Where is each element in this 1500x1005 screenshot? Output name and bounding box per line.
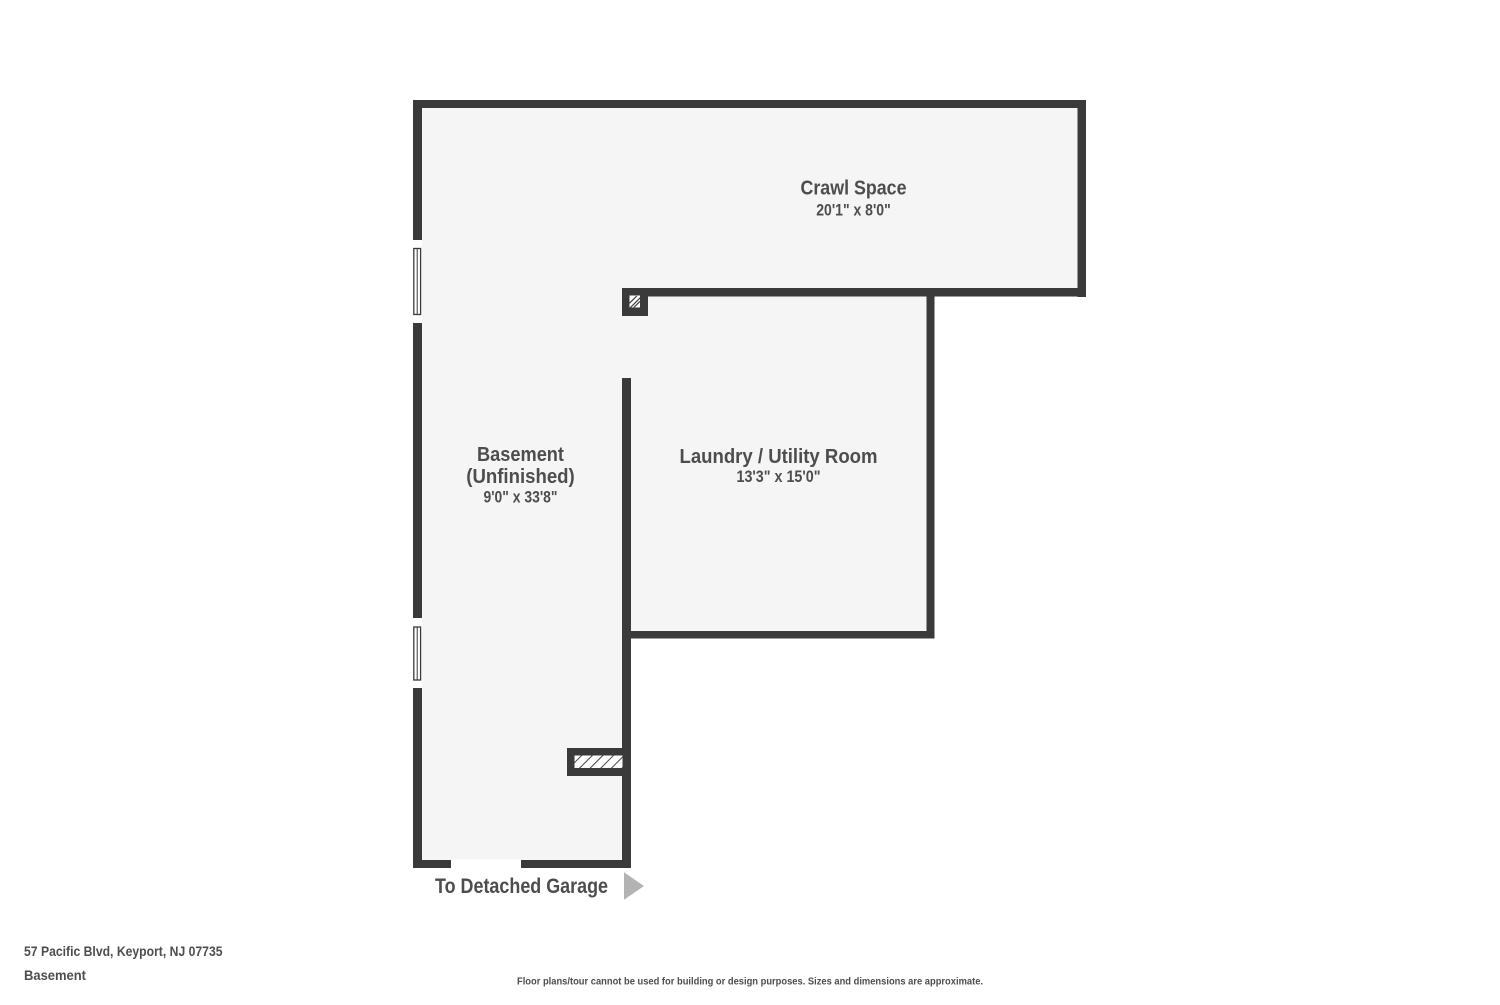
svg-text:Laundry / Utility Room: Laundry / Utility Room <box>680 446 878 468</box>
svg-text:57 Pacific Blvd, Keyport, NJ 0: 57 Pacific Blvd, Keyport, NJ 07735 <box>24 943 223 959</box>
svg-text:(Unfinished): (Unfinished) <box>466 466 575 488</box>
svg-text:13'3" x 15'0": 13'3" x 15'0" <box>737 468 821 486</box>
svg-text:9'0" x 33'8": 9'0" x 33'8" <box>484 489 558 507</box>
svg-text:20'1" x 8'0": 20'1" x 8'0" <box>816 202 891 220</box>
svg-text:Basement: Basement <box>477 444 564 466</box>
svg-text:Basement: Basement <box>24 967 86 983</box>
svg-text:To Detached Garage: To Detached Garage <box>435 875 608 898</box>
svg-text:Crawl Space: Crawl Space <box>801 178 907 200</box>
svg-text:Floor plans/tour cannot be use: Floor plans/tour cannot be used for buil… <box>517 976 983 988</box>
